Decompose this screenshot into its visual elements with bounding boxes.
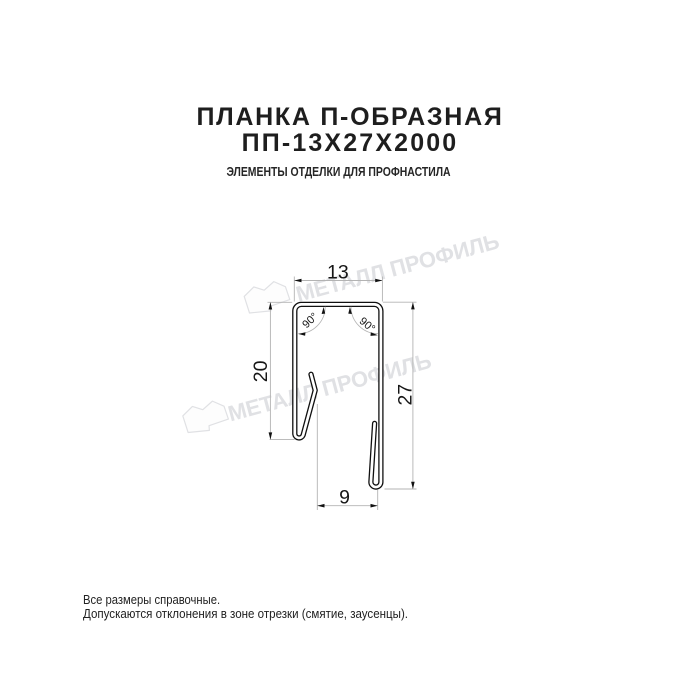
svg-text:20: 20	[250, 360, 272, 382]
svg-text:МЕТАЛЛ ПРОФИЛЬ: МЕТАЛЛ ПРОФИЛЬ	[293, 228, 502, 306]
svg-text:13: 13	[327, 262, 349, 284]
svg-text:27: 27	[394, 384, 416, 406]
svg-text:90°: 90°	[357, 315, 377, 335]
svg-text:9: 9	[339, 487, 350, 509]
svg-text:90°: 90°	[300, 311, 320, 331]
